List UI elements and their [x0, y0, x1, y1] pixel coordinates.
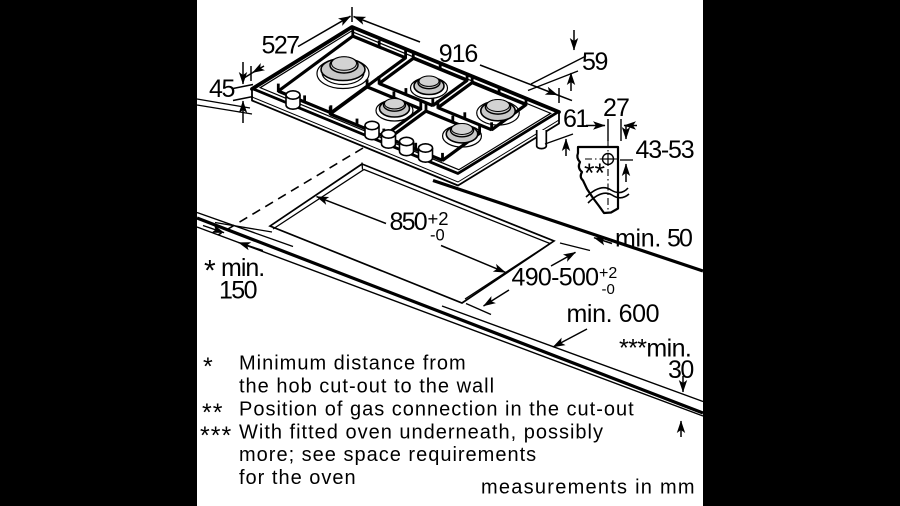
svg-text:30: 30	[668, 356, 693, 384]
svg-text:measurements in mm: measurements in mm	[481, 477, 696, 499]
svg-text:43-53: 43-53	[636, 136, 694, 164]
svg-text:min.: min.	[615, 225, 661, 253]
svg-text:**: **	[584, 158, 606, 188]
svg-text:45: 45	[209, 75, 235, 103]
svg-text:*: *	[204, 255, 216, 288]
svg-text:850: 850	[390, 208, 427, 236]
svg-text:for the oven: for the oven	[239, 467, 357, 489]
svg-text:+2: +2	[599, 265, 617, 282]
svg-text:Minimum distance from: Minimum distance from	[239, 353, 467, 375]
svg-text:59: 59	[582, 48, 608, 76]
svg-text:min. 600: min. 600	[567, 300, 660, 328]
svg-text:With fitted oven underneath, p: With fitted oven underneath, possibly	[239, 422, 604, 444]
svg-text:***: ***	[200, 422, 232, 450]
svg-text:527: 527	[262, 32, 300, 60]
svg-text:-0: -0	[430, 227, 445, 245]
svg-text:the hob cut-out to the wall: the hob cut-out to the wall	[239, 376, 495, 398]
svg-text:490-500: 490-500	[512, 264, 599, 292]
svg-text:150: 150	[219, 277, 257, 305]
svg-text:more; see space requirements: more; see space requirements	[239, 444, 537, 466]
svg-text:27: 27	[603, 94, 629, 122]
svg-text:916: 916	[439, 40, 478, 68]
svg-text:50: 50	[667, 225, 692, 253]
svg-text:*: *	[203, 353, 214, 381]
svg-text:61: 61	[563, 105, 588, 133]
svg-text:-0: -0	[602, 281, 615, 298]
svg-text:Position of gas connection in: Position of gas connection in the cut-ou…	[239, 399, 635, 421]
